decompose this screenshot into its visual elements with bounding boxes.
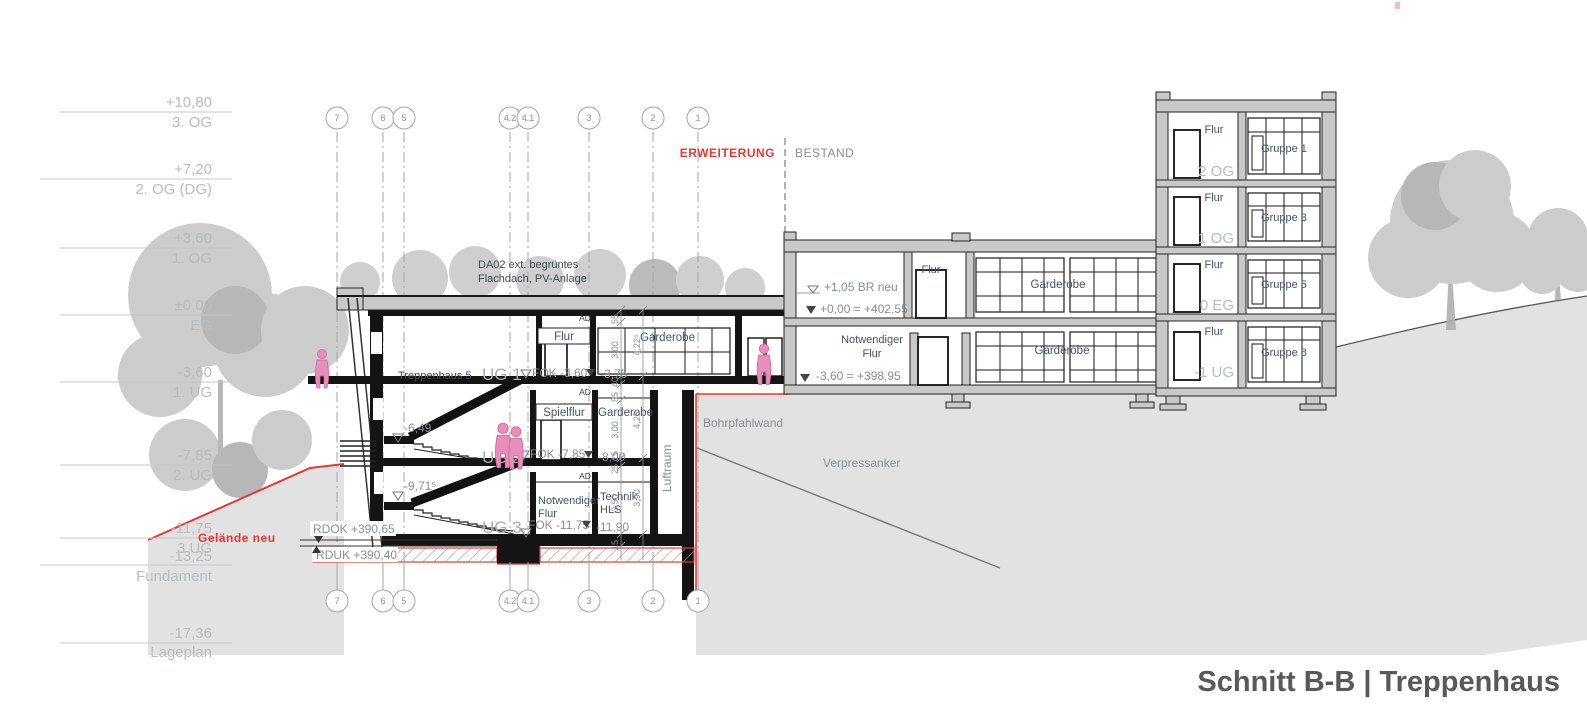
section-drawing-sheet: +10,80 3. OG +7,20 2. OG (DG) +3,60 1. O…: [0, 0, 1587, 716]
elevation-value: ±0,00: [175, 297, 212, 314]
room-label-notflur: Notwendiger: [538, 495, 600, 507]
door-tower-0eg: [1174, 264, 1200, 312]
level-ug1-fok: FOK -3,60: [532, 366, 588, 380]
ad-label: AD: [579, 471, 591, 481]
elevation-value: +7,20: [174, 161, 212, 178]
zone-label-erweiterung: ERWEITERUNG: [680, 146, 775, 160]
grid-bubble-label: 5: [401, 596, 406, 606]
level-ug3-aux: -11,90: [596, 520, 629, 534]
elevation-name: Fundament: [136, 568, 213, 585]
grid-bubble-label: 6: [380, 596, 385, 606]
tower-group-5: Gruppe 5: [1261, 279, 1307, 291]
grid-bubble-label: 7: [334, 596, 339, 606]
grid-bubble-label: 5: [401, 113, 406, 123]
dim: 55: [610, 314, 620, 324]
level-br-neu: +1,05 BR neu: [824, 280, 898, 294]
dim: 25: [610, 464, 620, 474]
room-label-garderobe-eg: Garderobe: [640, 332, 695, 344]
elevation-value: +3,60: [174, 230, 212, 247]
dim: 15: [610, 540, 620, 550]
drawing-title: Schnitt B-B | Treppenhaus: [1197, 666, 1560, 698]
grid-bubble-label: 3: [586, 596, 591, 606]
bohrpfahlwand-label: Bohrpfahlwand: [703, 416, 783, 430]
trees-left: [118, 223, 349, 498]
grid-bubble-label: 4.2: [504, 596, 517, 606]
level-landing-lower: -9,71⁵: [404, 479, 436, 493]
verpressanker-label: Verpressanker: [823, 456, 900, 470]
extension-roof: [337, 296, 784, 310]
roof-note: DA02 ext. begrüntes: [478, 259, 579, 271]
dim: 3,00: [610, 341, 620, 359]
tower-room-flur: Flur: [1205, 124, 1224, 136]
tower-level-1og: 1 OG: [1198, 230, 1234, 247]
grid-bubble-label: 2: [650, 596, 655, 606]
gelaende-neu-label: Gelände neu: [198, 531, 276, 545]
ad-label: AD: [579, 313, 591, 323]
elevation-name: 3. OG: [172, 114, 212, 131]
existing-tower: [1156, 92, 1336, 410]
dim: 4,22⁵: [632, 334, 642, 356]
tower-group-3: Gruppe 3: [1261, 212, 1307, 224]
tower-group-1: Gruppe 1: [1261, 143, 1307, 155]
dim: 3,90: [632, 489, 642, 507]
grid-bubble-label: 3: [586, 113, 591, 123]
grid-bubble-label: 7: [334, 113, 339, 123]
tower-group-8: Gruppe 8: [1261, 347, 1307, 359]
room-label-wing-garderobe-eg: Garderobe: [1031, 279, 1086, 291]
elevation-name: 1. UG: [173, 384, 212, 401]
elevation-name: 1. OG: [172, 250, 212, 267]
elevation-value: -3,60: [178, 364, 212, 381]
door-tower-2og: [1174, 130, 1200, 178]
elevation-name: Lageplan: [150, 644, 212, 661]
tower-room-flur: Flur: [1205, 192, 1224, 204]
level-ug2-fok: FOK -7,85: [530, 447, 586, 461]
elevation-name: EG: [190, 317, 212, 334]
elevation-value: -17,36: [169, 625, 212, 642]
stair-name: Treppenhaus 5: [398, 370, 472, 382]
zone-label-bestand: BESTAND: [795, 146, 854, 160]
grid-bubble-label: 1: [695, 596, 700, 606]
room-label-flur: Flur: [554, 331, 574, 343]
level-landing-upper: -6,49: [404, 421, 432, 435]
tower-roof: [1156, 100, 1336, 112]
elevation-value: -7,85: [178, 447, 212, 464]
room-label-wing-notflur: Flur: [863, 348, 882, 360]
rdok-label: RDOK +390,65: [313, 522, 395, 536]
tower-level-m1ug: -1 UG: [1194, 364, 1234, 381]
tower-room-flur: Flur: [1205, 326, 1224, 338]
door-tower-1og: [1174, 197, 1200, 245]
grid-bubble-label: 4.2: [504, 113, 517, 123]
section-drawing: +10,80 3. OG +7,20 2. OG (DG) +3,60 1. O…: [0, 0, 1587, 716]
dim: 3,00: [610, 421, 620, 439]
pink-mark-artifact: [1395, 2, 1400, 9]
ad-label: AD: [579, 387, 591, 397]
grid-bubble-label: 1: [695, 113, 700, 123]
grid-bubble-label: 4.1: [522, 113, 535, 123]
glazing-wing-ug: [976, 332, 1156, 382]
room-label-wing-flur: Flur: [922, 264, 941, 276]
level-ug3: UG 3: [482, 518, 522, 537]
dim: 40: [610, 377, 620, 387]
level-minus360: -3,60 = +398,95: [816, 369, 901, 383]
room-label-spielflur: Spielflur: [543, 407, 585, 419]
elevation-name: 2. OG (DG): [135, 181, 212, 198]
room-label-wing-notflur: Notwendiger: [841, 334, 903, 346]
room-label-luftraum: Luftraum: [660, 445, 674, 492]
level-zero: +0,00 = +402,55: [820, 302, 908, 316]
dim: 3,50: [610, 494, 620, 512]
rduk-label: RDUK +390,40: [316, 548, 397, 562]
tower-level-2og: 2 OG: [1198, 163, 1234, 180]
door-wing-eg: [916, 270, 946, 318]
elevation-value: +10,80: [166, 94, 212, 111]
dim: 15: [610, 451, 620, 461]
grid-bubble-label: 4.1: [522, 596, 535, 606]
grid-bubble-label: 6: [380, 113, 385, 123]
wing-roof: [784, 240, 1160, 252]
tower-level-0eg: 0 EG: [1200, 297, 1234, 314]
elevation-name: 2. UG: [173, 467, 212, 484]
tower-room-flur: Flur: [1205, 259, 1224, 271]
grid-bubble-label: 2: [650, 113, 655, 123]
roof-note: Flachdach, PV-Anlage: [478, 273, 587, 285]
bohrpfahlwand-wall: [682, 390, 694, 600]
level-ug1: UG 1: [482, 365, 522, 384]
ground-right: [696, 296, 1587, 655]
room-label-garderobe-ug2: Garderobe: [598, 407, 653, 419]
elevation-value: -13,25: [169, 548, 212, 565]
dim: 4,25: [632, 411, 642, 429]
level-ug3-fok: FOK -11,75: [528, 518, 589, 532]
door-wing-ug: [918, 337, 948, 385]
room-label-wing-garderobe-ug: Garderobe: [1035, 345, 1090, 357]
dim: 85: [610, 392, 620, 402]
